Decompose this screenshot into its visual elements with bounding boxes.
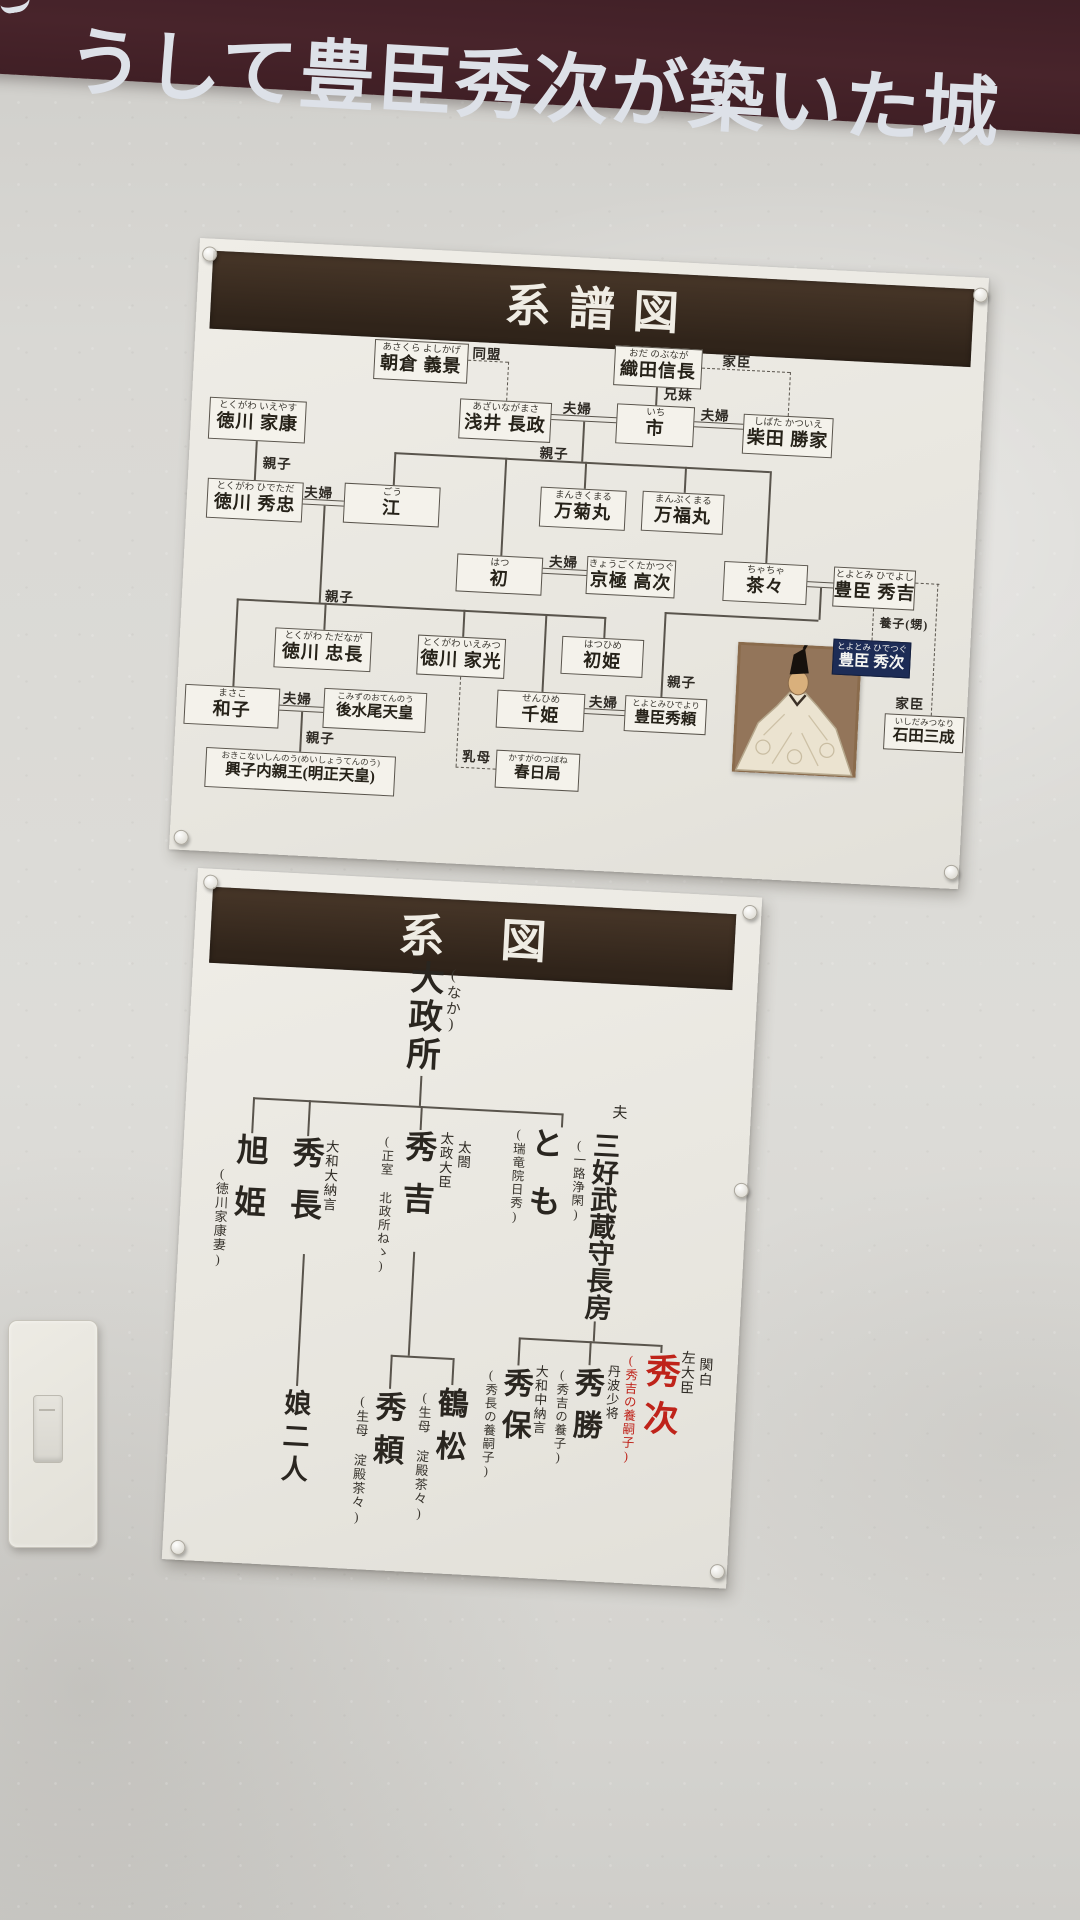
title2-hidetsugu: 関白 — [696, 1357, 712, 1388]
note-hidekatsu: (秀吉の養子) — [550, 1367, 568, 1465]
connector-line — [456, 767, 496, 770]
person-box-hatsu: はつ初 — [455, 553, 543, 595]
person-name: 柴田 勝家 — [743, 428, 832, 452]
person-name: 朝倉 義景 — [374, 353, 467, 377]
note-asahihime: (徳川家康妻) — [210, 1165, 229, 1268]
connector-line — [393, 452, 396, 485]
relation-label-couple: 夫婦 — [700, 404, 730, 425]
person-box-tokugawa-tadanaga: とくがわ ただなが徳川 忠長 — [273, 627, 372, 672]
person-tsurumatsu: 鶴松 — [430, 1386, 467, 1474]
relation-label-wet-nurse: 乳母 — [462, 745, 492, 766]
root-kana: (なか) — [442, 967, 461, 1034]
person-box-toyotomi-hideyoshi: とよとみ ひでよし豊臣 秀吉 — [832, 567, 916, 611]
genealogy-poster-keifuzu: 系譜図 あさくら よしかげ朝倉 義景 おだ のぶなが織田信長 とくがわ いえやす… — [169, 238, 989, 889]
connector-line — [408, 1252, 415, 1356]
person-name: 豊臣 秀次 — [833, 651, 910, 672]
person-box-asakura-yoshikage: あさくら よしかげ朝倉 義景 — [373, 339, 469, 384]
person-name: 徳川 秀忠 — [207, 492, 302, 517]
person-box-gomizunoo-tenno: こみずのおてんのう後水尾天皇 — [322, 688, 427, 733]
person-box-tokugawa-hidetada: とくがわ ひでただ徳川 秀忠 — [206, 478, 304, 523]
connector-line — [660, 612, 666, 697]
label-husband: 夫 — [609, 1104, 626, 1121]
person-name: 市 — [616, 417, 693, 441]
connector-line — [931, 584, 939, 716]
connector-line — [254, 441, 258, 480]
relation-label-vassal: 家臣 — [722, 350, 752, 371]
title-hidenaga: 大和大納言 — [320, 1139, 338, 1212]
relation-label-parent-child: 親子 — [325, 585, 355, 606]
relation-label-parent-child: 親子 — [539, 441, 569, 462]
person-asahihime: 旭姫 — [229, 1132, 268, 1238]
light-switch-plate — [8, 1320, 98, 1548]
person-box-ishida-mitsunari: いしだみつなり石田三成 — [883, 713, 965, 753]
connector-line — [871, 609, 874, 641]
person-box-senhime: せんひめ千姫 — [496, 690, 586, 732]
person-box-azai-nagamasa: あざいながまさ浅井 長政 — [458, 398, 552, 443]
title2-hideyoshi: 太閤 — [455, 1140, 471, 1170]
connector-line — [500, 458, 507, 556]
light-switch-rocker[interactable] — [33, 1395, 63, 1463]
person-hideyori: 秀頼 — [367, 1390, 404, 1478]
note-tsurumatsu: (生母 淀殿茶々) — [411, 1389, 432, 1522]
person-miyoshi-nagafusa: 三好武蔵守長房 — [581, 1131, 619, 1321]
push-pin — [973, 287, 989, 303]
person-name: 千姫 — [497, 704, 584, 728]
person-hidekatsu: 秀勝 — [567, 1366, 603, 1452]
person-hideyoshi: 秀吉 — [397, 1129, 436, 1235]
connector-line — [541, 614, 547, 692]
connector-line — [506, 362, 509, 401]
connector-line — [603, 617, 606, 638]
push-pin — [170, 1539, 186, 1555]
genealogy-poster-keizu: 系図 大政所 (なか) 旭姫 (徳川家康妻) 秀長 大和大納言 秀吉 太政大臣 … — [162, 868, 762, 1589]
relation-label-parent-child: 親子 — [667, 670, 697, 691]
person-name: 茶々 — [724, 575, 807, 599]
person-name: 和子 — [185, 698, 279, 722]
note-tomo: (瑞竜院日秀) — [507, 1127, 525, 1225]
connector-line — [655, 387, 658, 405]
connector-line — [818, 588, 821, 620]
connector-line — [665, 612, 819, 621]
switch-indicator-line — [39, 1409, 55, 1411]
person-name: 浅井 長政 — [460, 412, 551, 436]
poster2-title-bar: 系図 — [209, 887, 736, 990]
connector-line — [232, 598, 238, 686]
connector-line — [589, 1341, 592, 1365]
person-box-hatsuhime: はつひめ初姫 — [560, 636, 644, 678]
title-hideyasu: 大和中納言 — [531, 1364, 548, 1435]
person-box-chacha: ちゃちゃ茶々 — [722, 561, 808, 605]
person-box-tokugawa-iemitsu: とくがわ いえみつ徳川 家光 — [416, 635, 506, 679]
connector-line — [451, 1358, 454, 1385]
connector-line — [323, 603, 326, 630]
connector-line — [593, 1321, 596, 1341]
connector-line — [419, 1076, 422, 1106]
note-hidetsugu: (秀吉の養嗣子) — [618, 1353, 637, 1465]
connector-line — [584, 462, 587, 489]
relation-label-couple: 夫婦 — [562, 397, 592, 418]
person-name: 徳川 忠長 — [275, 641, 371, 666]
push-pin — [173, 829, 189, 845]
connector-line — [660, 1345, 662, 1353]
relation-label-couple: 夫婦 — [549, 550, 579, 571]
person-name: 京極 高次 — [587, 570, 675, 594]
person-hideyasu: 秀保 — [496, 1367, 532, 1453]
relation-label-couple: 夫婦 — [282, 687, 312, 708]
connector-line — [319, 506, 325, 603]
relation-label-alliance: 同盟 — [472, 342, 502, 363]
root-person-omandokoro: 大政所 — [401, 959, 443, 1075]
connector-line — [253, 1097, 564, 1115]
connector-line — [915, 583, 939, 585]
connector-line — [765, 471, 771, 563]
person-box-mankikumaru: まんきくまる万菊丸 — [539, 487, 627, 531]
connector-line — [684, 467, 687, 493]
person-name: 江 — [344, 497, 439, 522]
person-tomo: とも — [523, 1126, 563, 1244]
person-box-tokugawa-ieyasu: とくがわ いえやす徳川 家康 — [208, 397, 307, 444]
person-name: 万福丸 — [642, 505, 723, 529]
connector-line — [296, 1254, 304, 1386]
push-pin — [710, 1564, 726, 1580]
person-hidetsugu-red: 秀次 — [637, 1352, 679, 1448]
connector-line — [391, 1355, 453, 1360]
person-name: 豊臣秀頼 — [625, 708, 706, 729]
push-pin — [742, 905, 758, 921]
person-name: 織田信長 — [614, 359, 701, 383]
person-name: 石田三成 — [884, 726, 963, 747]
connector-line — [389, 1355, 392, 1389]
person-hidenaga: 秀長 — [285, 1135, 324, 1241]
person-box-kyogoku-takatsugu: きょうごくたかつぐ京極 高次 — [585, 556, 676, 598]
connector-line — [456, 677, 462, 767]
push-pin — [943, 864, 959, 880]
person-box-ichi: いち市 — [615, 403, 695, 447]
connector-line — [788, 372, 791, 416]
connector-line — [237, 598, 607, 618]
person-box-toyotomi-hideyori: とよとみひでより豊臣秀頼 — [624, 695, 708, 735]
connector-line — [581, 422, 585, 462]
person-name: 初 — [457, 567, 542, 591]
person-box-oda-nobunaga: おだ のぶなが織田信長 — [613, 345, 703, 389]
connector-line — [462, 610, 465, 637]
connector-line — [251, 1097, 254, 1133]
relation-label-adopted-nephew: 養子(甥) — [879, 614, 929, 633]
person-box-masako: まさこ和子 — [183, 684, 280, 729]
connector-line — [517, 1337, 520, 1365]
title-hidetsugu: 左大臣 — [677, 1350, 694, 1396]
note-hideyasu: (秀長の養嗣子) — [478, 1368, 497, 1480]
person-name: 豊臣 秀吉 — [833, 580, 914, 604]
note-hideyori: (生母 淀殿茶々) — [349, 1393, 370, 1526]
relation-label-parent-child: 親子 — [305, 726, 335, 747]
relation-label-parent-child: 親子 — [262, 451, 292, 472]
person-name: 万菊丸 — [540, 501, 625, 525]
title-hideyoshi: 太政大臣 — [436, 1131, 453, 1190]
connector-line — [561, 1113, 563, 1127]
partial-character-mark — [0, 0, 32, 15]
person-box-go: ごう江 — [343, 483, 441, 528]
relation-label-siblings: 兄妹 — [663, 383, 693, 404]
person-name: 徳川 家康 — [209, 411, 305, 436]
connector-line — [420, 1106, 423, 1130]
connector-line — [299, 712, 303, 752]
person-box-shibata-katsuie: しばた かついえ柴田 勝家 — [742, 414, 834, 459]
connector-line — [307, 1100, 310, 1136]
relation-label-couple: 夫婦 — [589, 690, 619, 711]
relation-label-couple: 夫婦 — [304, 481, 334, 502]
relation-label-vassal: 家臣 — [895, 692, 925, 713]
title-hidekatsu: 丹波少将 — [604, 1364, 621, 1421]
person-box-okiko-naishinno: おきこないしんのう(めいしょうてんのう)興子内親王(明正天皇) — [204, 747, 396, 797]
person-two-daughters: 娘二人 — [277, 1388, 310, 1488]
person-box-manpukumaru: まんぷくまる万福丸 — [641, 491, 725, 535]
person-name: 徳川 家光 — [418, 649, 505, 673]
note-nagafusa: (一路浄閑) — [568, 1138, 586, 1223]
note-hideyoshi: (正室 北政所ねゝ) — [373, 1134, 393, 1274]
person-name: 初姫 — [562, 650, 643, 674]
person-box-kasuga-no-tsubone: かすがのつぼね春日局 — [495, 750, 581, 792]
person-box-toyotomi-hidetsugu-highlight: とよとみ ひでつぐ豊臣 秀次 — [832, 639, 912, 679]
